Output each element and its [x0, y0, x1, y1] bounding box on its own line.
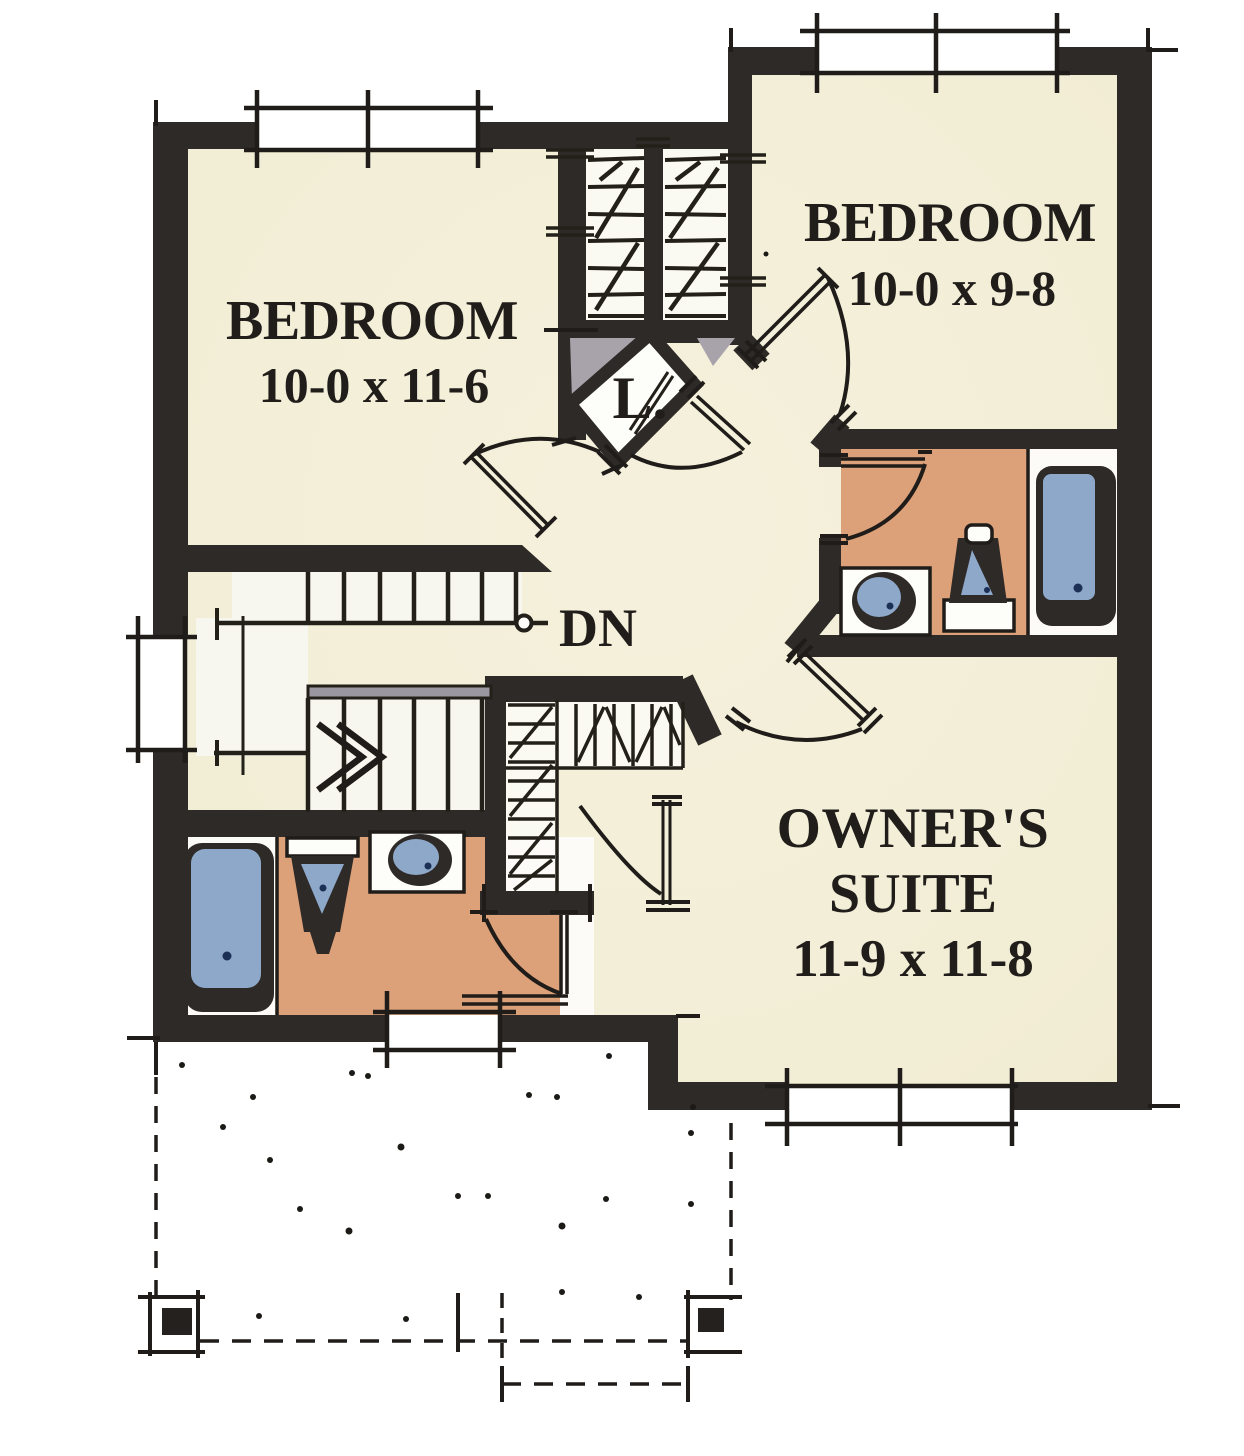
svg-text:BEDROOM: BEDROOM: [804, 192, 1096, 254]
svg-text:11-9 x 11-8: 11-9 x 11-8: [792, 930, 1033, 988]
svg-text:SUITE: SUITE: [829, 863, 997, 925]
svg-text:L.: L.: [612, 365, 667, 431]
svg-text:10-0 x 9-8: 10-0 x 9-8: [848, 260, 1056, 316]
svg-text:DN: DN: [559, 598, 637, 658]
svg-text:BEDROOM: BEDROOM: [226, 290, 518, 352]
svg-text:OWNER'S: OWNER'S: [777, 797, 1050, 860]
svg-text:10-0 x 11-6: 10-0 x 11-6: [259, 357, 490, 413]
